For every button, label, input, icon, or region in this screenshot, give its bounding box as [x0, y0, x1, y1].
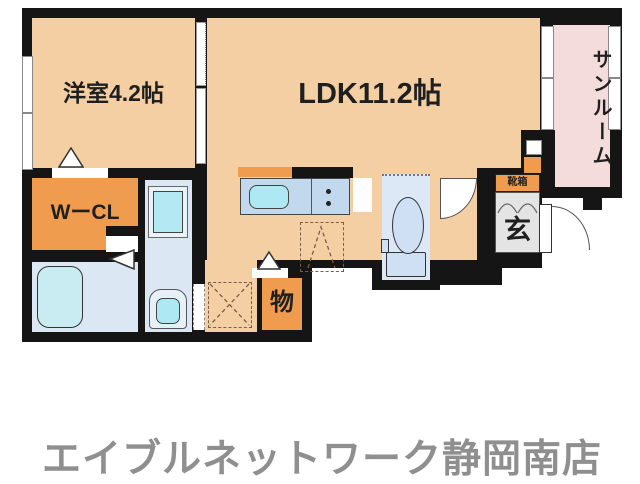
shoe-box: 靴箱	[495, 174, 540, 192]
folding-door-icon	[497, 194, 538, 214]
door-triangle-icon	[58, 147, 84, 168]
wcl-door-step	[106, 226, 138, 236]
window-western-left	[22, 56, 33, 170]
stove-burner-icon	[326, 189, 331, 194]
window-pane	[22, 113, 33, 170]
western-wcl-opening	[52, 168, 108, 178]
dashed-equipment-space	[208, 282, 252, 328]
kitchen-back-wall	[292, 167, 353, 178]
dashed-refrigerator-space	[300, 222, 344, 272]
toilet-tank	[386, 252, 426, 277]
kitchen-sink	[249, 185, 289, 209]
genkan-label: 玄	[495, 217, 540, 244]
arrow-up-icon	[301, 223, 342, 270]
stove-burner-icon	[326, 201, 331, 206]
storage-door-triangle-icon	[257, 251, 281, 270]
toilet-control	[381, 239, 389, 253]
footer-store-name: エイブルネットワーク静岡南店	[42, 428, 638, 484]
washing-machine	[153, 191, 183, 233]
screenshot-root: { "plan": { "western_room_label": "洋室4.2…	[0, 0, 640, 480]
wall-entry-right	[583, 194, 602, 210]
door-arc-entrance	[552, 206, 590, 250]
entrance-door-leaf	[539, 204, 552, 253]
shoe-box-label: 靴箱	[496, 178, 539, 188]
wcl-label: WーCL	[32, 202, 138, 223]
corner-window	[526, 140, 542, 155]
washroom-door-opening	[193, 284, 205, 330]
washbasin-bowl	[156, 298, 180, 324]
x-mark-icon	[209, 283, 250, 326]
washbasin	[149, 289, 187, 329]
sliding-door-western-ldk	[196, 88, 206, 164]
western-room-label: 洋室4.2帖	[32, 82, 195, 105]
kitchen-counter-back-strip	[238, 167, 292, 177]
sliding-door-western-ldk	[196, 22, 206, 86]
kitchen-side-opening	[353, 178, 372, 212]
washing-machine-pan	[148, 186, 188, 238]
storage-label: 物	[262, 291, 302, 315]
corner-cabinet	[524, 157, 541, 173]
sunroom-label: サンルーム	[553, 34, 610, 184]
counter-divider	[311, 179, 312, 214]
ldk-label: LDK11.2帖	[230, 80, 510, 109]
kitchen-counter	[240, 178, 350, 215]
bath-door-triangle-icon	[108, 249, 136, 270]
toilet-bowl	[392, 197, 424, 254]
floor-plan: 物 靴箱 玄 洋室4.2帖 LDK11.2帖 サンルーム WーCL	[0, 0, 640, 420]
bathtub	[37, 266, 83, 328]
